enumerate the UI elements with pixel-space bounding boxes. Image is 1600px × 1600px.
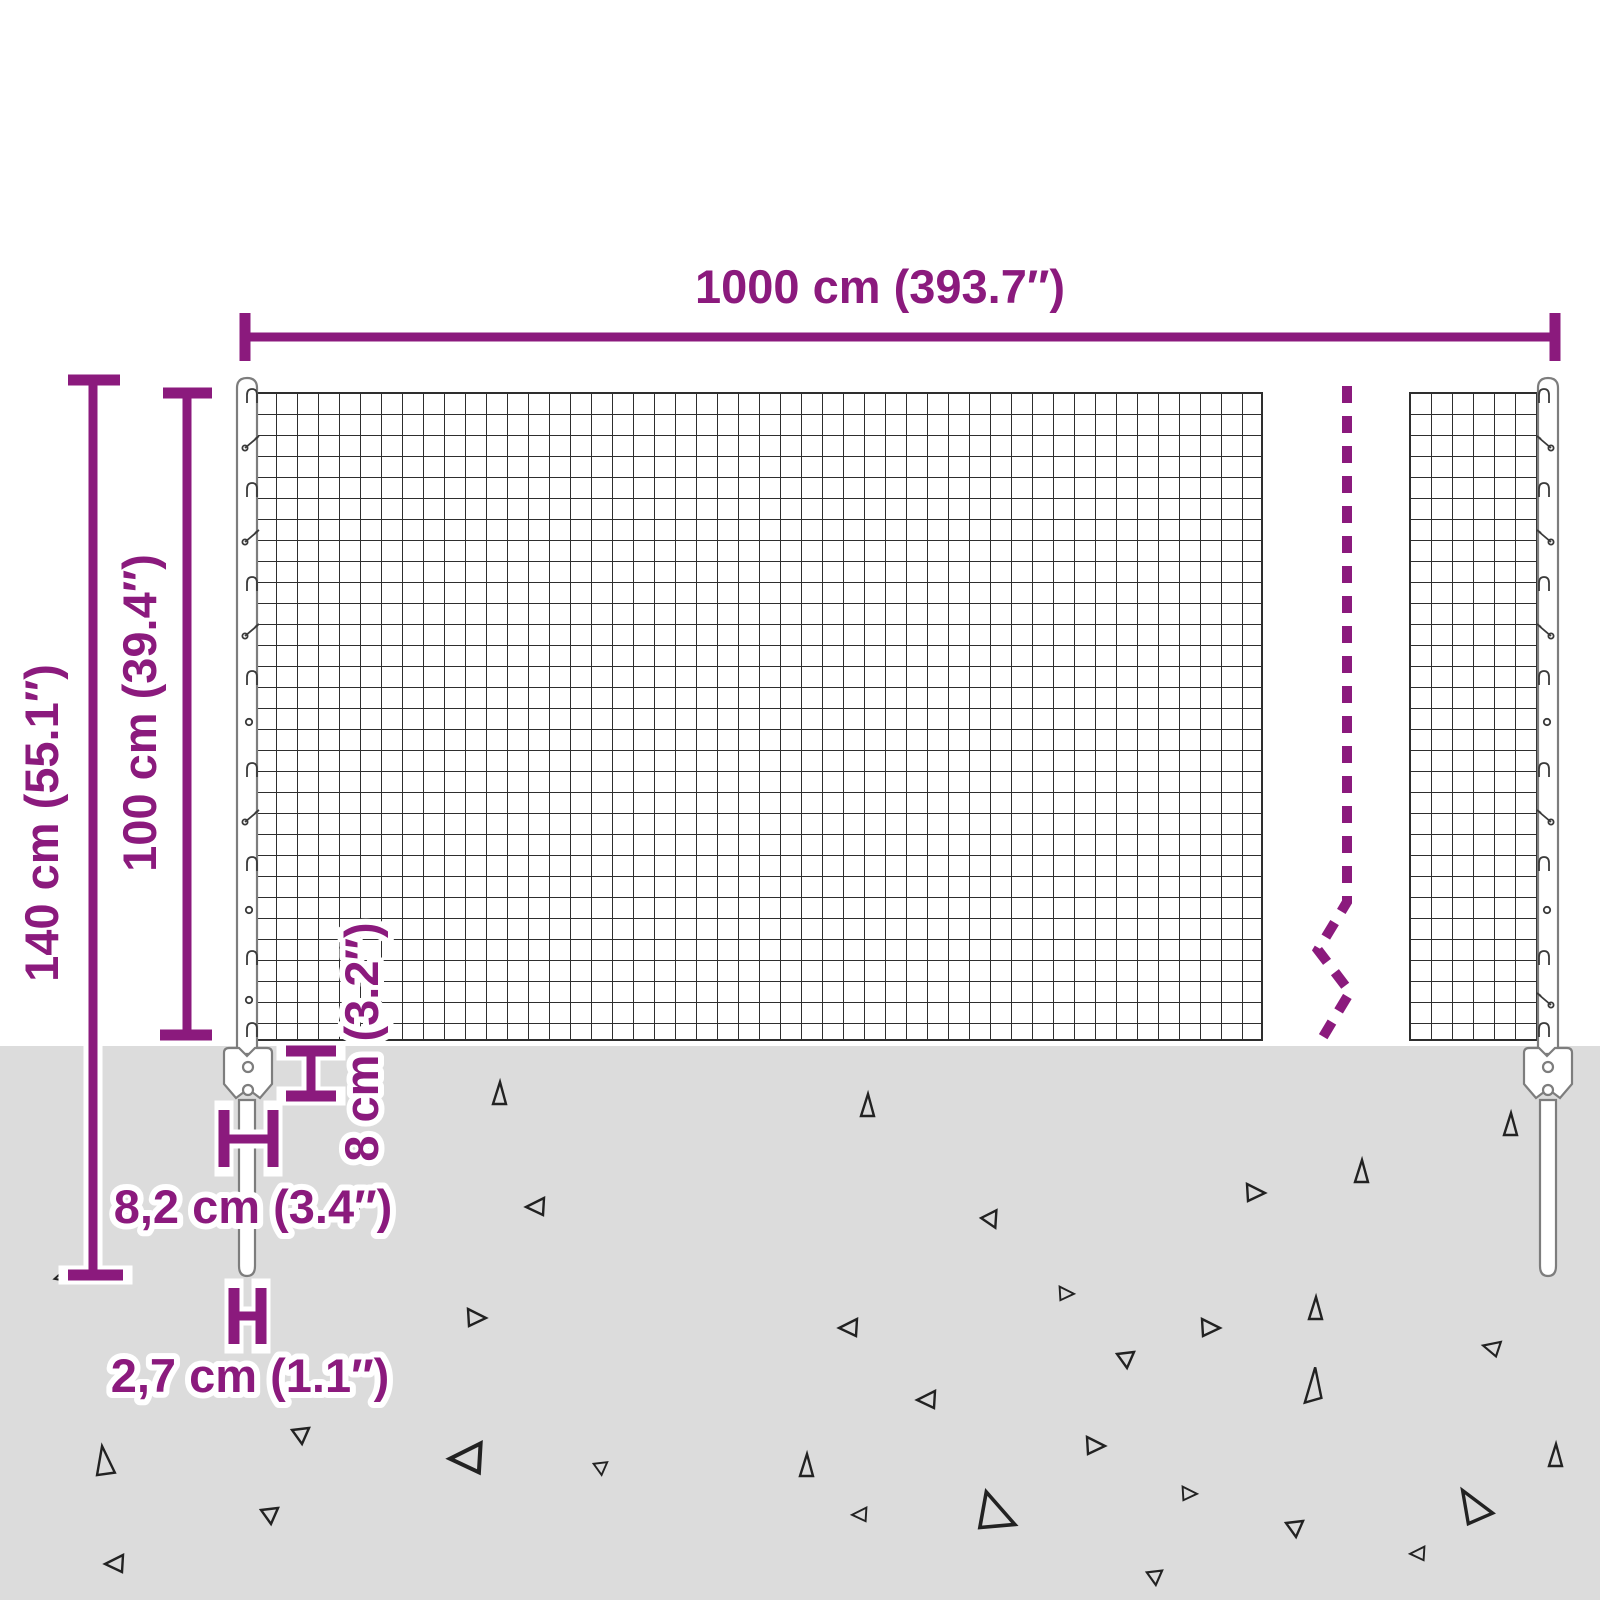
right-plate-hole (1543, 1085, 1553, 1095)
dimension-plate-height-label: 8 cm (3.2″) (335, 922, 388, 1161)
dimension-plate-width-label: 8,2 cm (3.4″) (114, 1180, 393, 1233)
dimension-total-width: 1000 cm (393.7″) (245, 260, 1555, 361)
left-plate-hole (243, 1062, 253, 1072)
right-post-below-ground (1540, 1100, 1556, 1276)
dimension-total-width-label: 1000 cm (393.7″) (695, 260, 1065, 313)
right-plate-hole (1543, 1062, 1553, 1072)
mesh-panel-right (1410, 393, 1547, 1040)
dimension-mesh-height: 100 cm (39.4″) (113, 393, 212, 1035)
dimension-mesh-height-label: 100 cm (39.4″) (113, 554, 166, 872)
break-continuation-line (1318, 386, 1350, 1042)
left-plate-hole (243, 1085, 253, 1095)
mesh-panels (255, 393, 1547, 1040)
dimension-post-width-label: 2,7 cm (1.1″) (111, 1349, 390, 1402)
dimension-total-height-label: 140 cm (55.1″) (15, 664, 68, 982)
fence-dimension-diagram: 1000 cm (393.7″) 140 cm (55.1″) 100 cm (… (0, 0, 1600, 1600)
diagram-canvas: 1000 cm (393.7″) 140 cm (55.1″) 100 cm (… (0, 0, 1600, 1600)
left-post-above-ground (237, 378, 257, 1054)
mesh-panel-main (255, 393, 1262, 1040)
